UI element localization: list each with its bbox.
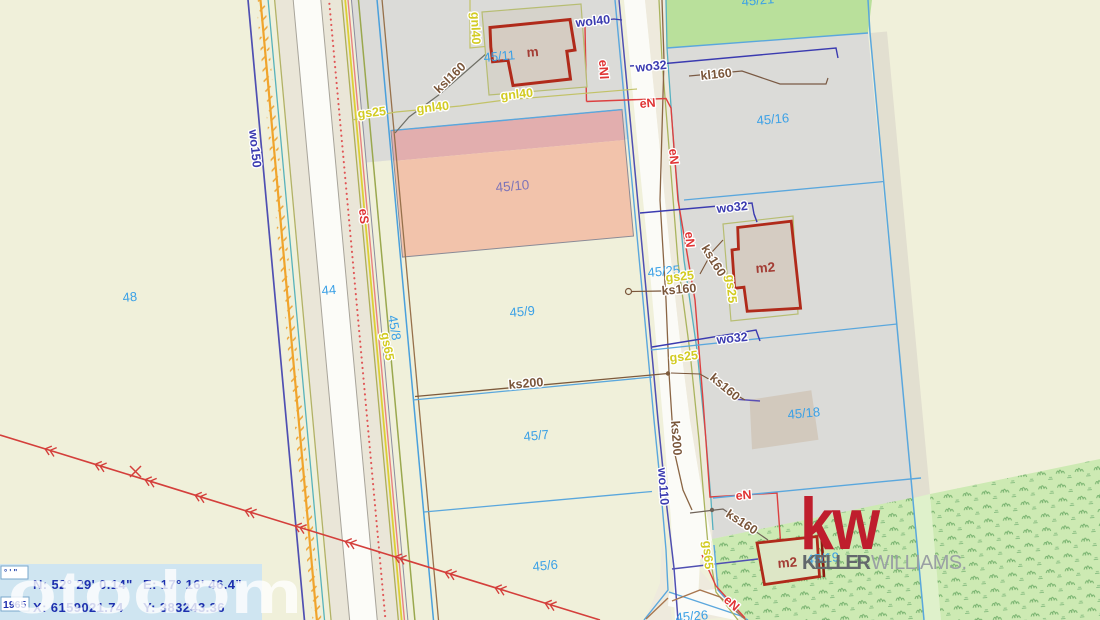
svg-text:ks200: ks200	[668, 420, 684, 456]
svg-text:KELLER: KELLER	[802, 552, 872, 574]
svg-text:m2: m2	[777, 554, 798, 571]
svg-text:gs25: gs25	[723, 274, 739, 304]
svg-text:eN: eN	[682, 231, 697, 248]
svg-text:WILLIAMS.: WILLIAMS.	[871, 552, 967, 574]
svg-text:45/6: 45/6	[532, 557, 559, 574]
svg-text:45/7: 45/7	[523, 427, 550, 444]
svg-text:45/10: 45/10	[495, 177, 530, 195]
svg-text:m2: m2	[755, 259, 776, 276]
svg-text:eN: eN	[666, 148, 681, 165]
svg-text:gs25: gs25	[669, 348, 699, 365]
svg-text:otodom: otodom	[8, 559, 302, 620]
svg-text:45/26: 45/26	[675, 607, 709, 620]
svg-text:wo110: wo110	[655, 466, 672, 505]
svg-text:45/16: 45/16	[756, 110, 790, 128]
svg-text:48: 48	[122, 289, 138, 305]
svg-text:eS: eS	[356, 208, 371, 224]
svg-text:eN: eN	[735, 488, 752, 503]
svg-text:44: 44	[321, 282, 337, 298]
svg-text:eNl: eNl	[596, 59, 611, 79]
svg-text:45/9: 45/9	[509, 303, 536, 320]
svg-text:m: m	[526, 44, 539, 60]
svg-text:45/11: 45/11	[483, 47, 516, 65]
svg-text:gnl40: gnl40	[468, 12, 483, 45]
svg-text:45/18: 45/18	[787, 404, 821, 422]
svg-text:eN: eN	[639, 96, 656, 111]
svg-text:gs65: gs65	[700, 540, 716, 569]
svg-text:gs25: gs25	[357, 104, 387, 121]
